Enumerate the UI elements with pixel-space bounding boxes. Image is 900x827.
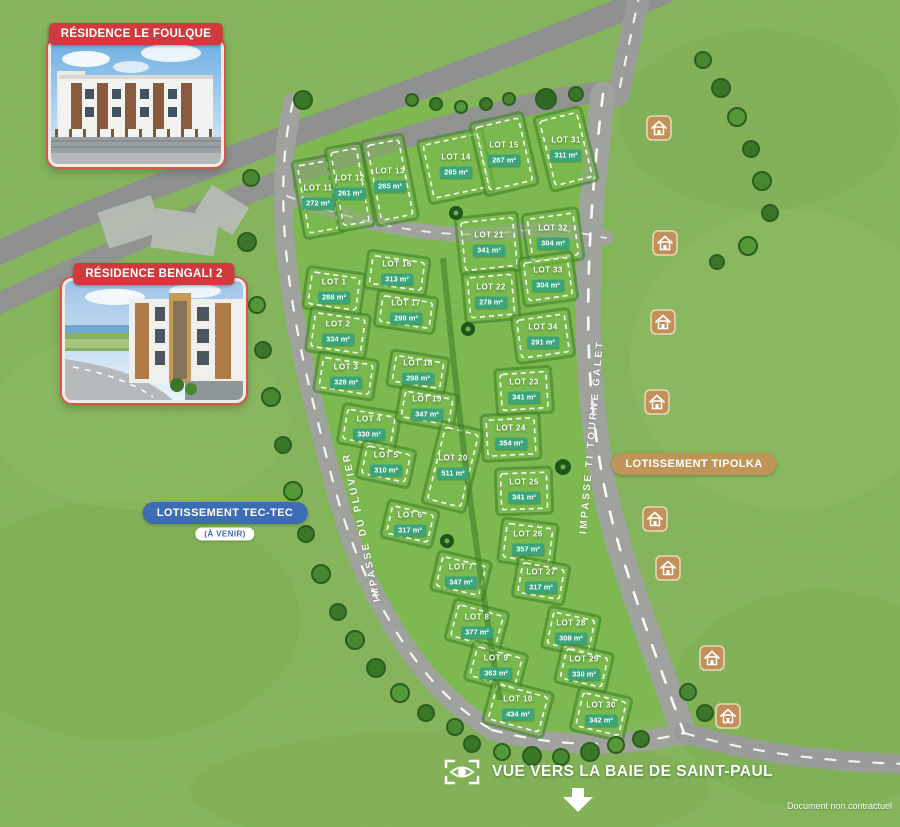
lot-parcel [455,212,523,276]
lot-parcel [495,467,553,515]
lot-parcel [305,307,371,359]
lotissement-tec-tec-badge: LOTISSEMENT TEC-TEC [143,502,308,524]
view-marker-label: VUE VERS LA BAIE DE SAINT-PAUL [492,763,773,781]
residence-photo-art [51,41,221,164]
residence-bengali-2-badge: RÉSIDENCE BENGALI 2 [73,263,234,285]
lotissement-tipolka-badge: LOTISSEMENT TIPOLKA [611,453,776,475]
lot-parcel [364,250,431,296]
lot-parcel [462,269,520,324]
lot-parcel [481,413,541,462]
residence-card-le-foulque: RÉSIDENCE LE FOULQUE [48,38,224,167]
residence-le-foulque-photo [48,38,224,167]
down-arrow-icon [563,788,593,812]
lot-parcel [511,308,575,364]
lot-parcel [374,290,438,334]
site-plan-page: LOT 1288 m²LOT 2334 m²LOT 3328 m²LOT 433… [0,0,900,827]
view-marker: VUE VERS LA BAIE DE SAINT-PAUL [443,757,773,787]
residence-photo-art [65,281,243,400]
lot-parcel [512,557,570,605]
eye-icon [443,757,481,787]
document-note: Document non contractuel [787,801,892,811]
lot-parcel [494,366,553,416]
lot-parcel [518,251,578,306]
residence-le-foulque-badge: RÉSIDENCE LE FOULQUE [49,23,223,45]
lot-parcel [313,352,379,401]
lotissement-tec-tec-status: (À VENIR) [195,528,254,541]
residence-card-bengali-2: RÉSIDENCE BENGALI 2 [62,278,246,403]
residence-bengali-2-photo [62,278,246,403]
